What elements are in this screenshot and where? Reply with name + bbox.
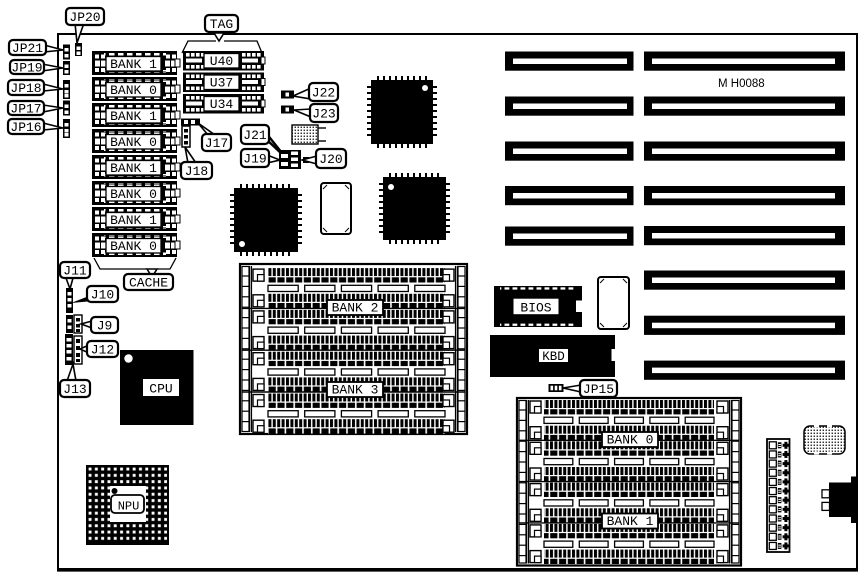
svg-text:JP15: JP15 [583,382,614,397]
svg-text:BANK 0: BANK 0 [110,83,157,98]
svg-text:BANK 1: BANK 1 [110,109,157,124]
svg-text:J20: J20 [319,152,342,167]
svg-text:TAG: TAG [210,17,233,32]
svg-text:CACHE: CACHE [129,276,168,291]
svg-text:J23: J23 [312,107,335,122]
svg-text:BANK 0: BANK 0 [110,187,157,202]
svg-text:J21: J21 [243,128,267,143]
svg-text:J9: J9 [97,319,113,334]
svg-text:J19: J19 [243,152,266,167]
svg-text:BANK 0: BANK 0 [607,433,654,448]
svg-text:BANK 1: BANK 1 [110,213,157,228]
svg-text:NPU: NPU [118,500,140,514]
svg-text:BANK 0: BANK 0 [110,135,157,150]
svg-text:J11: J11 [63,264,87,279]
svg-text:BANK 1: BANK 1 [110,161,157,176]
svg-text:JP16: JP16 [10,120,41,135]
svg-text:BIOS: BIOS [520,301,551,316]
svg-text:J22: J22 [312,86,335,101]
svg-text:JP18: JP18 [10,81,41,96]
svg-text:JP21: JP21 [12,41,43,56]
svg-text:J12: J12 [91,343,114,358]
svg-text:BANK 3: BANK 3 [332,383,379,398]
svg-text:U40: U40 [210,54,233,69]
svg-text:M H0088: M H0088 [718,78,765,90]
svg-text:BANK 1: BANK 1 [607,514,654,529]
svg-text:U34: U34 [210,97,234,112]
svg-text:BANK 1: BANK 1 [110,57,157,72]
svg-text:JP20: JP20 [69,10,100,25]
svg-text:KBD: KBD [542,350,565,364]
svg-text:J13: J13 [63,382,86,397]
svg-text:CPU: CPU [149,382,172,397]
svg-text:J17: J17 [205,136,228,151]
svg-text:U37: U37 [210,76,233,91]
svg-text:J18: J18 [185,164,208,179]
svg-text:BANK 2: BANK 2 [332,301,379,316]
svg-text:JP19: JP19 [11,61,42,76]
svg-text:JP17: JP17 [10,102,41,117]
svg-text:BANK 0: BANK 0 [110,239,157,254]
svg-text:J10: J10 [91,288,114,303]
